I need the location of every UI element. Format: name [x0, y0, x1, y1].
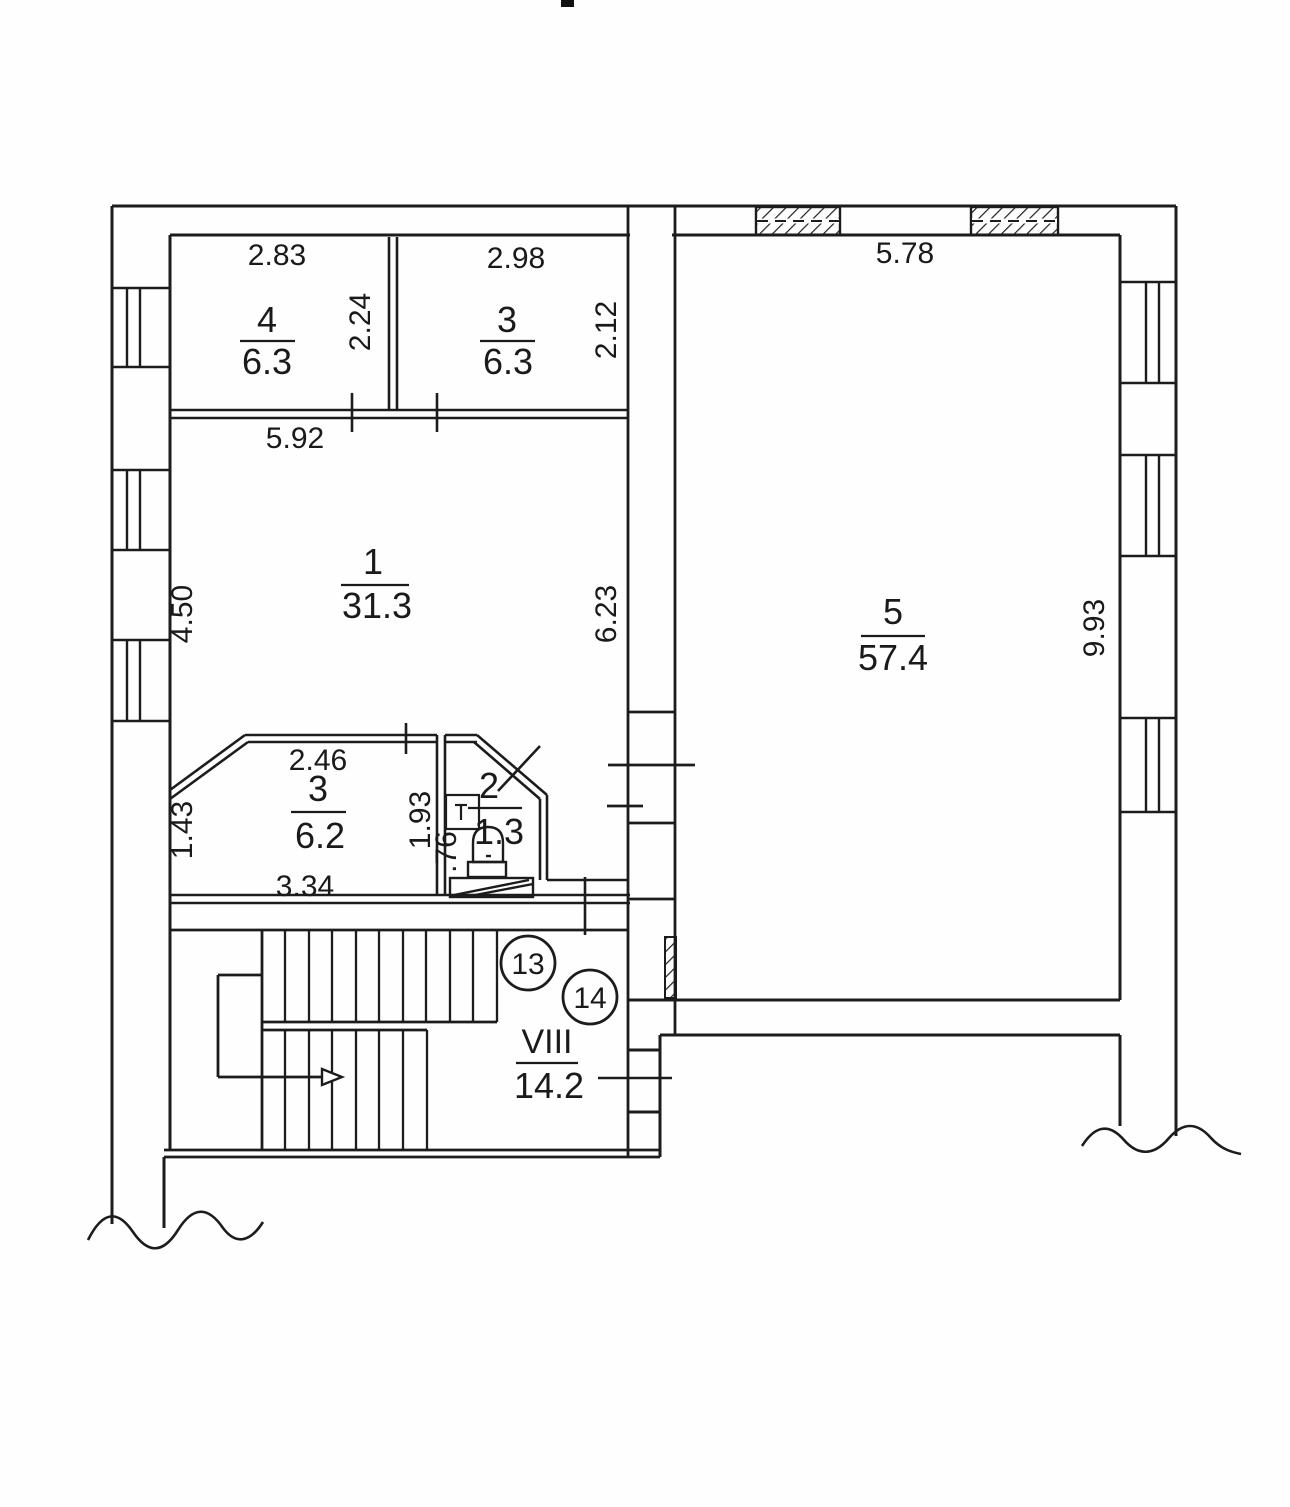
dim-room3-bottom-height: 1.43 [166, 801, 199, 859]
room1-area: 31.3 [342, 585, 412, 626]
dim-wc-width: .76 [430, 831, 463, 873]
window [112, 470, 170, 550]
cutoff-text-fragment [561, 0, 574, 7]
dim-room1-height-right: 6.23 [590, 585, 623, 643]
markers: 13 14 [501, 936, 617, 1024]
dim-room3-bottom-width: 3.34 [276, 870, 334, 903]
dim-room3-top-height: 2.12 [590, 301, 623, 359]
room5-bottom-wall [628, 1000, 1120, 1157]
left-wall-windows [112, 288, 170, 721]
window [1120, 282, 1176, 383]
dim-room4-width: 2.83 [248, 239, 306, 272]
wc-area: 1.3 [474, 811, 524, 852]
dim-room4-height: 2.24 [344, 293, 377, 351]
floor-plan-canvas: 13 14 4 6.3 3 6.3 1 31.3 5 57.4 3 6.2 2 … [0, 0, 1290, 1507]
top-wall-piers [756, 207, 1058, 235]
stairs-upper-flight [285, 930, 497, 1022]
right-wall-windows [1120, 282, 1176, 812]
window [1120, 718, 1176, 812]
wavy-break [88, 1212, 263, 1249]
dim-room5-width: 5.78 [876, 237, 934, 270]
dim-room5-height: 9.93 [1078, 599, 1111, 657]
room4-area: 6.3 [242, 341, 292, 382]
dim-room3-top-width: 2.98 [487, 242, 545, 275]
marker-13-label: 13 [511, 948, 544, 981]
window [1120, 455, 1176, 556]
room3-top-area: 6.3 [483, 341, 533, 382]
dim-room3-bottom-top: 2.46 [289, 744, 347, 777]
room5-number: 5 [883, 591, 903, 632]
stairwell [164, 930, 660, 1157]
partitions-top-rooms [170, 237, 628, 432]
room5-area: 57.4 [858, 637, 928, 678]
room3-bottom-walls [170, 723, 630, 935]
floor-plan-page: 13 14 4 6.3 3 6.3 1 31.3 5 57.4 3 6.2 2 … [0, 0, 1290, 1507]
room3-bottom-area: 6.2 [295, 815, 345, 856]
room1-number: 1 [363, 541, 383, 582]
stairs-lower-flight [285, 1030, 427, 1150]
room3-top-number: 3 [497, 299, 517, 340]
window [112, 288, 170, 367]
chamfer-wall [170, 735, 245, 790]
dim-room1-width: 5.92 [266, 422, 324, 455]
hatched-pier [665, 937, 676, 998]
stairwell-area: 14.2 [514, 1065, 584, 1106]
stairwell-number: VIII [521, 1023, 572, 1061]
marker-14-label: 14 [573, 982, 606, 1015]
wc-number: 2 [479, 765, 499, 806]
window [112, 640, 170, 721]
wavy-break [1082, 1126, 1241, 1154]
dim-room1-height-left: 4.50 [166, 585, 199, 643]
room4-number: 4 [257, 299, 277, 340]
